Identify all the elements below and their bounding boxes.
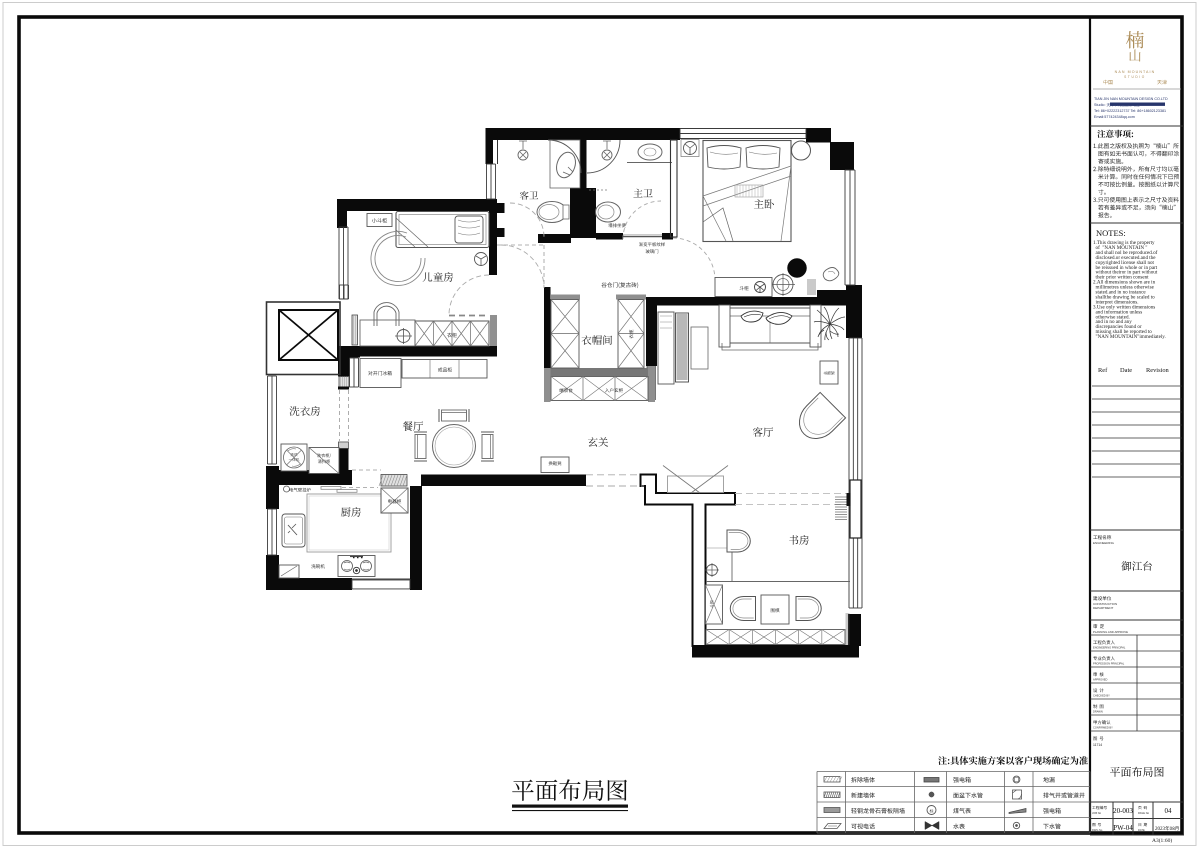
svg-text:DEPARTMENT: DEPARTMENT [1093,606,1114,610]
svg-text:A3(1:60): A3(1:60) [1152,837,1172,844]
svg-text:"NAN MOUNTAIN"immediately.: "NAN MOUNTAIN"immediately. [1093,334,1166,340]
svg-text:04: 04 [1165,807,1173,815]
svg-text:CHECKED BY: CHECKED BY [1093,694,1110,698]
svg-text:ENGINEERING PRINCIPAL: ENGINEERING PRINCIPAL [1093,646,1126,650]
svg-text:TIAN JIN NAN MOUNTAIN DESIGN C: TIAN JIN NAN MOUNTAIN DESIGN CO.LTD [1094,97,1168,101]
svg-text:Tel: 86+02222312737 Tel: 86+18: Tel: 86+02222312737 Tel: 86+18602123381 [1094,109,1166,113]
svg-text:STUDIO: STUDIO [1124,75,1146,79]
svg-text:Ref: Ref [1098,367,1108,374]
svg-text:20-003: 20-003 [1113,807,1133,815]
svg-text:DWG No: DWG No [1092,828,1103,832]
svg-text:CONFIRMED BY: CONFIRMED BY [1093,726,1113,730]
svg-text:DRAWN: DRAWN [1093,710,1103,714]
svg-text:NOTES:: NOTES: [1096,228,1126,238]
svg-text:Revision: Revision [1146,367,1170,374]
svg-text:PROFESSION PRINCIPAL: PROFESSION PRINCIPAL [1093,662,1125,666]
svg-text:PAGE No: PAGE No [1138,811,1150,815]
svg-text:2023: 2023 [1155,827,1166,832]
svg-text:Date: Date [1120,367,1132,374]
svg-text:JOB No: JOB No [1092,811,1102,815]
svg-text:ENGINEERING: ENGINEERING [1093,541,1115,545]
svg-text:DATE: DATE [1138,828,1145,832]
svg-text:PLANNING AND APPROVE: PLANNING AND APPROVE [1093,630,1128,634]
svg-text:PW-04: PW-04 [1113,824,1133,832]
svg-text:11714: 11714 [1093,743,1102,747]
svg-text:Email:577424348qq.com: Email:577424348qq.com [1094,115,1135,119]
svg-text:NAN MOUNTAIN: NAN MOUNTAIN [1115,70,1156,74]
svg-text:APPROVED: APPROVED [1093,678,1108,682]
